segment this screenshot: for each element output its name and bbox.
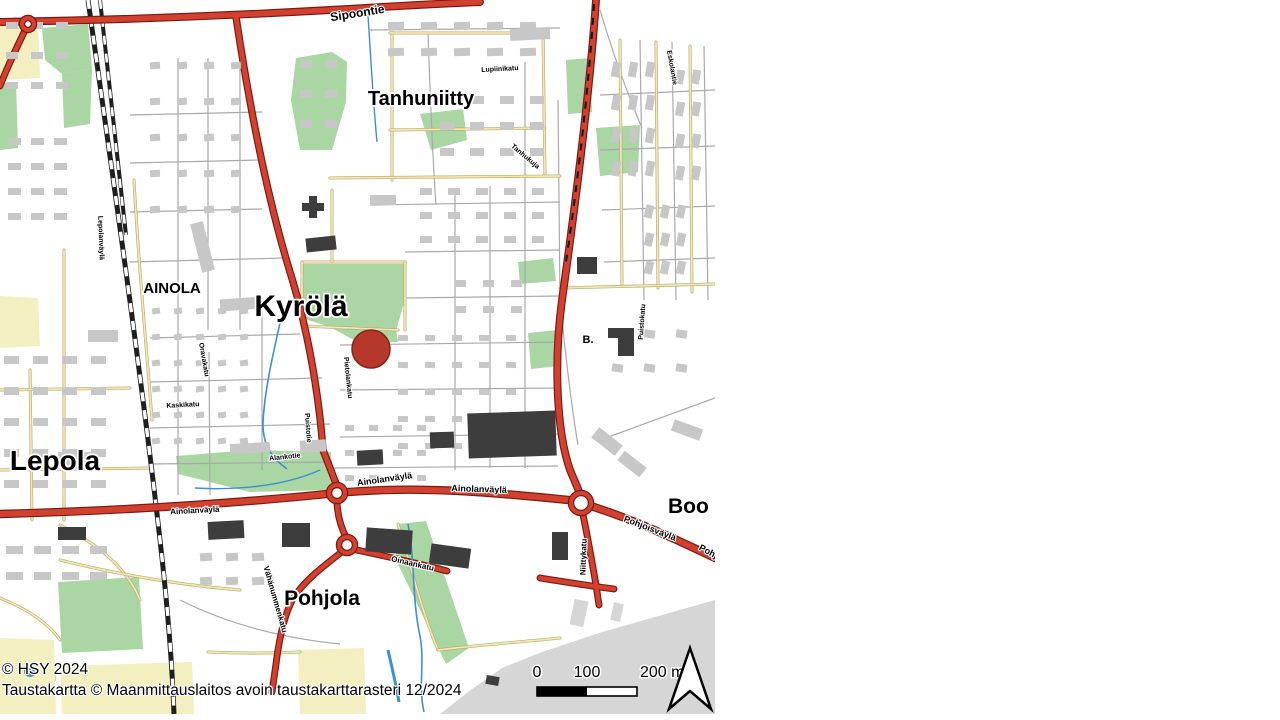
- building: [675, 165, 685, 180]
- street-label: Ainolanväylä: [356, 470, 413, 488]
- attribution-line2: Taustakartta © Maanmittauslaitos avoin t…: [2, 680, 461, 701]
- building: [62, 356, 77, 364]
- building: [31, 163, 44, 170]
- building: [398, 362, 408, 368]
- building: [91, 356, 106, 364]
- building: [62, 480, 77, 488]
- building: [470, 122, 484, 130]
- building: [421, 48, 437, 57]
- park-area: [58, 577, 143, 653]
- road-segment: [130, 209, 262, 212]
- building: [240, 411, 249, 418]
- building: [218, 333, 227, 340]
- landuse-area: [0, 296, 40, 348]
- building: [33, 356, 48, 364]
- place-label: Lepola: [10, 445, 101, 476]
- building: [174, 307, 183, 314]
- building: [177, 134, 187, 142]
- building: [174, 437, 183, 444]
- building: [393, 425, 402, 431]
- building: [325, 60, 337, 68]
- building: [204, 134, 214, 142]
- building: [8, 213, 21, 220]
- building: [676, 260, 687, 274]
- place-label: Kyrölä: [254, 290, 348, 323]
- building: [218, 411, 227, 418]
- park-area: [518, 258, 556, 284]
- building: [8, 138, 21, 145]
- building: [660, 232, 671, 246]
- building: [500, 122, 514, 130]
- park-area: [291, 52, 347, 150]
- building: [230, 442, 270, 454]
- building: [483, 306, 494, 313]
- building: [569, 599, 588, 627]
- building: [150, 62, 160, 70]
- building: [177, 170, 187, 178]
- building: [345, 425, 354, 431]
- building: [671, 419, 703, 441]
- building: [204, 206, 214, 214]
- building: [476, 188, 488, 195]
- building: [4, 387, 19, 395]
- building: [452, 335, 462, 341]
- building: [510, 27, 551, 41]
- building: [218, 385, 227, 392]
- building: [91, 418, 106, 426]
- place-label: Pohjola: [284, 587, 360, 610]
- building: [240, 333, 249, 340]
- building: [4, 356, 19, 364]
- building: [204, 62, 214, 70]
- building: [611, 363, 623, 372]
- building: [398, 335, 408, 341]
- building: [421, 22, 437, 31]
- building: [4, 418, 19, 426]
- building: [6, 546, 23, 554]
- building: [240, 359, 249, 366]
- building: [455, 280, 466, 287]
- building: [231, 62, 241, 70]
- road-segment: [0, 598, 60, 640]
- street-label: Sipoontie: [329, 2, 386, 24]
- park-area: [176, 450, 333, 492]
- building: [610, 602, 624, 622]
- building: [196, 411, 205, 418]
- building: [506, 362, 516, 368]
- building: [628, 61, 638, 77]
- location-marker[interactable]: [352, 330, 390, 368]
- location-marker-icon[interactable]: [352, 330, 390, 368]
- building: [231, 134, 241, 142]
- building: [325, 90, 337, 98]
- building: [6, 22, 18, 29]
- building: [645, 94, 655, 110]
- building: [88, 330, 118, 342]
- building: [691, 101, 701, 116]
- building: [56, 22, 68, 29]
- building: [31, 213, 44, 220]
- building: [454, 48, 470, 57]
- road-segment: [150, 424, 330, 428]
- road-segment: [130, 112, 262, 115]
- building: [150, 134, 160, 142]
- road-segment: [704, 46, 708, 300]
- building: [325, 120, 337, 128]
- building: [218, 437, 227, 444]
- place-label: Boo: [668, 495, 709, 518]
- building: [231, 170, 241, 178]
- building: [511, 306, 522, 313]
- building: [152, 385, 161, 392]
- building: [520, 48, 536, 57]
- building: [174, 333, 183, 340]
- building: [200, 553, 213, 562]
- road-segment: [130, 160, 262, 163]
- building: [6, 52, 18, 59]
- building: [31, 52, 43, 59]
- building: [91, 387, 106, 395]
- building: [62, 572, 79, 580]
- map-attribution: © HSY 2024 Taustakartta © Maanmittauslai…: [2, 659, 461, 702]
- building: [552, 532, 568, 560]
- building: [177, 98, 187, 106]
- building: [150, 98, 160, 106]
- building: [675, 329, 687, 338]
- building: [152, 437, 161, 444]
- building: [440, 148, 454, 156]
- building: [417, 475, 426, 481]
- building: [530, 122, 544, 130]
- building: [577, 257, 597, 274]
- building: [56, 52, 68, 59]
- building: [417, 425, 426, 431]
- building: [54, 213, 67, 220]
- building: [532, 188, 544, 195]
- scale-bar-segment: [537, 687, 587, 696]
- building: [676, 204, 687, 218]
- scale-bar-label: 0: [533, 664, 542, 681]
- building: [31, 188, 44, 195]
- building: [91, 480, 106, 488]
- building: [487, 22, 503, 31]
- road-segment: [405, 296, 560, 298]
- building: [675, 133, 685, 148]
- main-road: [540, 578, 614, 589]
- building: [34, 572, 51, 580]
- building: [675, 101, 685, 116]
- street-label: Puistotie: [303, 413, 312, 443]
- building: [479, 335, 489, 341]
- building: [476, 212, 488, 219]
- building: [62, 387, 77, 395]
- scale-bar-label: 100: [574, 664, 601, 681]
- building: [282, 523, 310, 547]
- building: [174, 385, 183, 392]
- scale-bar-label: 200 m: [640, 664, 684, 681]
- building: [196, 307, 205, 314]
- building: [645, 127, 655, 143]
- building: [425, 389, 435, 395]
- building: [90, 546, 107, 554]
- building: [150, 206, 160, 214]
- building: [174, 411, 183, 418]
- building: [300, 90, 312, 98]
- building: [388, 48, 404, 57]
- building: [62, 546, 79, 554]
- building: [483, 280, 494, 287]
- park-area: [42, 24, 92, 74]
- building: [208, 520, 245, 540]
- building: [398, 389, 408, 395]
- building: [511, 280, 522, 287]
- building: [504, 188, 516, 195]
- building: [300, 120, 312, 128]
- building: [398, 443, 408, 449]
- building: [204, 170, 214, 178]
- place-label: AINOLA: [143, 280, 201, 297]
- street-label: Oravakatu: [197, 342, 210, 377]
- building: [532, 212, 544, 219]
- building: [190, 221, 215, 273]
- building: [530, 96, 544, 104]
- building: [365, 527, 413, 554]
- building: [479, 362, 489, 368]
- building: [645, 160, 655, 176]
- building: [90, 572, 107, 580]
- park-area: [62, 68, 92, 128]
- building: [644, 260, 655, 274]
- building: [530, 148, 544, 156]
- building: [430, 432, 455, 449]
- building: [6, 572, 23, 580]
- building: [152, 333, 161, 340]
- building: [357, 449, 384, 465]
- building: [31, 82, 43, 89]
- building: [506, 335, 516, 341]
- building: [226, 577, 239, 586]
- building: [152, 307, 161, 314]
- building: [196, 437, 205, 444]
- street-label: Ainolanväylä: [170, 505, 220, 517]
- street-label: Pohjoisväylä: [623, 514, 679, 543]
- building: [62, 418, 77, 426]
- building: [393, 450, 402, 456]
- street-label: Niittykatu: [578, 538, 588, 575]
- street-label: Ainolanväylä: [451, 483, 508, 495]
- building: [218, 359, 227, 366]
- building: [506, 389, 516, 395]
- building: [476, 236, 488, 243]
- building: [177, 206, 187, 214]
- building: [388, 22, 404, 31]
- attribution-line1: © HSY 2024: [2, 659, 461, 680]
- building: [204, 98, 214, 106]
- building: [4, 480, 19, 488]
- building: [467, 410, 557, 458]
- building: [196, 333, 205, 340]
- building: [532, 236, 544, 243]
- building: [691, 69, 701, 84]
- building: [420, 188, 432, 195]
- building: [504, 236, 516, 243]
- building: [660, 260, 671, 274]
- building: [54, 163, 67, 170]
- building: [174, 359, 183, 366]
- building: [454, 22, 470, 31]
- street-label: Lepolanväylä: [96, 216, 105, 261]
- building: [56, 82, 68, 89]
- building: [345, 475, 354, 481]
- place-label: Tanhuniitty: [368, 88, 475, 110]
- building: [302, 203, 324, 211]
- building: [177, 62, 187, 70]
- building: [425, 416, 435, 422]
- building: [31, 138, 44, 145]
- building: [300, 60, 312, 68]
- building: [33, 480, 48, 488]
- building: [675, 363, 687, 372]
- road-segment: [150, 378, 322, 382]
- building: [470, 148, 484, 156]
- building: [660, 204, 671, 218]
- building: [152, 359, 161, 366]
- road-segment: [340, 388, 560, 390]
- building: [448, 236, 460, 243]
- building: [676, 232, 687, 246]
- building: [500, 96, 514, 104]
- building: [645, 61, 655, 77]
- building: [398, 416, 408, 422]
- building: [425, 362, 435, 368]
- street-label: Kaskikatu: [166, 401, 199, 410]
- building: [34, 546, 51, 554]
- building: [370, 195, 396, 205]
- building: [487, 48, 503, 57]
- street-label: Lupiinikatu: [481, 65, 519, 74]
- building: [8, 163, 21, 170]
- building: [369, 425, 378, 431]
- building: [196, 385, 205, 392]
- building: [644, 204, 655, 218]
- road-segment: [405, 250, 560, 252]
- street-label: Pietolankatu: [342, 357, 353, 399]
- building: [618, 334, 634, 356]
- building: [591, 427, 623, 456]
- road-segment: [558, 100, 560, 300]
- building: [8, 188, 21, 195]
- building: [452, 416, 462, 422]
- place-label: B.: [583, 334, 594, 346]
- building: [440, 122, 454, 130]
- building: [425, 335, 435, 341]
- building: [200, 577, 213, 586]
- building: [417, 450, 426, 456]
- map-canvas[interactable]: SipoontieLupiinikatuTanhukujaEskolantieL…: [0, 0, 715, 720]
- building: [345, 450, 354, 456]
- building: [252, 553, 265, 562]
- building: [448, 188, 460, 195]
- road-segment: [332, 466, 558, 468]
- building: [479, 389, 489, 395]
- building: [420, 212, 432, 219]
- building: [54, 188, 67, 195]
- building: [33, 387, 48, 395]
- building: [33, 418, 48, 426]
- building: [150, 170, 160, 178]
- building: [452, 362, 462, 368]
- road-segment: [370, 202, 560, 205]
- building: [252, 577, 265, 586]
- building: [617, 451, 646, 478]
- building: [455, 306, 466, 313]
- building: [58, 527, 86, 540]
- street-label: Eskolantie: [665, 50, 678, 86]
- building: [643, 363, 655, 372]
- stream: [368, 16, 377, 142]
- building: [240, 385, 249, 392]
- map-export-page: SipoontieLupiinikatuTanhukujaEskolantieL…: [0, 0, 1280, 720]
- building: [6, 82, 18, 89]
- building: [226, 553, 239, 562]
- building: [152, 411, 161, 418]
- building: [644, 232, 655, 246]
- road-casing: [0, 598, 60, 640]
- building: [448, 212, 460, 219]
- building: [231, 206, 241, 214]
- building: [54, 138, 67, 145]
- building: [300, 439, 327, 452]
- building: [420, 236, 432, 243]
- building: [504, 212, 516, 219]
- building: [452, 389, 462, 395]
- building: [231, 98, 241, 106]
